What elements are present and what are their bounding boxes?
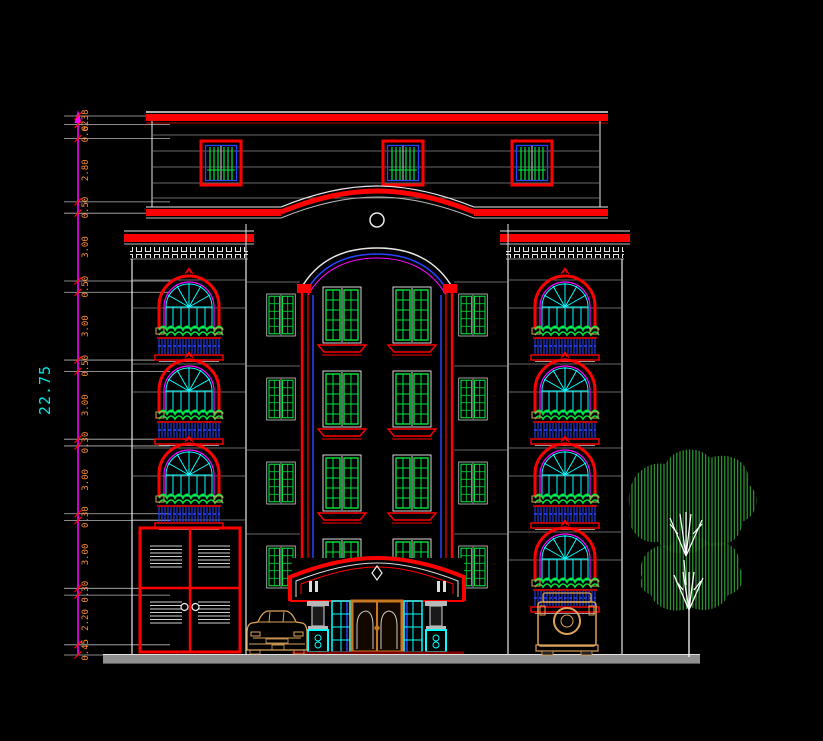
sedan-car — [247, 611, 307, 654]
dim-label: 0.50 — [81, 197, 91, 219]
casement-window — [323, 371, 361, 427]
tree — [629, 449, 757, 657]
cad-drawing-canvas[interactable]: 0.380.622.800.503.000.503.000.503.000.30… — [0, 0, 823, 741]
window-sill — [388, 345, 436, 355]
dim-label: 3.00 — [81, 544, 91, 566]
left-tower — [124, 231, 254, 654]
garage-louver-door — [140, 528, 240, 652]
ground-line — [103, 655, 700, 664]
casement-window — [267, 378, 296, 420]
louver-panel — [198, 546, 230, 567]
arched-balcony-window — [155, 436, 223, 530]
dim-label: 3.00 — [81, 469, 91, 491]
suv-car — [536, 593, 598, 655]
casement-window — [459, 462, 488, 504]
arched-balcony-window — [531, 436, 599, 530]
entrance-column-right — [425, 601, 447, 652]
tree-trunk-branches — [674, 572, 703, 657]
window-sill — [388, 429, 436, 439]
dim-label: 0.45 — [81, 639, 91, 661]
dimension-chain: 0.380.622.800.503.000.503.000.503.000.30… — [36, 109, 170, 660]
louver-panel — [198, 602, 230, 623]
dim-label: 0.30 — [81, 581, 91, 603]
arched-balcony-window — [155, 268, 223, 362]
elevation-drawing: 0.380.622.800.503.000.503.000.503.000.30… — [0, 0, 823, 741]
window-sill — [318, 345, 366, 355]
arched-balcony-window — [531, 520, 599, 614]
arched-balcony-window — [531, 268, 599, 362]
dim-label: 3.00 — [81, 236, 91, 258]
louver-panel — [150, 546, 182, 567]
casement-window — [323, 287, 361, 343]
casement-window — [267, 294, 296, 336]
central-windows — [267, 287, 488, 595]
headlight — [251, 632, 260, 636]
tower-cornice — [500, 234, 630, 242]
entrance-column-left — [307, 601, 329, 652]
headlight — [294, 632, 303, 636]
dim-label: 0.62 — [81, 121, 91, 143]
top-floor-window — [512, 141, 552, 185]
right-tower — [500, 231, 630, 654]
door-handle — [181, 604, 188, 611]
top-cornice — [146, 114, 608, 121]
top-floor-window — [201, 141, 241, 185]
dentil-row — [506, 247, 624, 258]
casement-window — [393, 287, 431, 343]
window-sill — [388, 513, 436, 523]
license-plate — [272, 645, 284, 650]
dim-label: 0.30 — [81, 432, 91, 454]
dim-label: 2.20 — [81, 609, 91, 631]
dim-label: 3.00 — [81, 315, 91, 337]
arched-balcony-window — [531, 352, 599, 446]
casement-window — [323, 455, 361, 511]
casement-window — [459, 378, 488, 420]
dim-label: 3.00 — [81, 394, 91, 416]
dentil-row — [130, 247, 248, 258]
entrance — [290, 558, 464, 655]
window-sill — [318, 513, 366, 523]
casement-window — [267, 462, 296, 504]
casement-window — [393, 455, 431, 511]
window-sill — [318, 429, 366, 439]
overall-height-label: 22.75 — [36, 365, 54, 415]
dim-label: 2.80 — [81, 159, 91, 181]
pediment-circle-ornament — [370, 213, 384, 227]
door-handle — [192, 604, 199, 611]
main-cornice-pediment — [146, 186, 608, 227]
dim-label: 0.50 — [81, 355, 91, 377]
dim-label: 0.30 — [81, 506, 91, 528]
top-floor-window — [383, 141, 423, 185]
tower-cornice — [124, 234, 254, 242]
tree-foliage-lower — [640, 536, 743, 611]
arched-balcony-window — [155, 352, 223, 446]
louver-panel — [150, 602, 182, 623]
casement-window — [393, 371, 431, 427]
dim-label: 0.50 — [81, 276, 91, 298]
casement-window — [459, 294, 488, 336]
